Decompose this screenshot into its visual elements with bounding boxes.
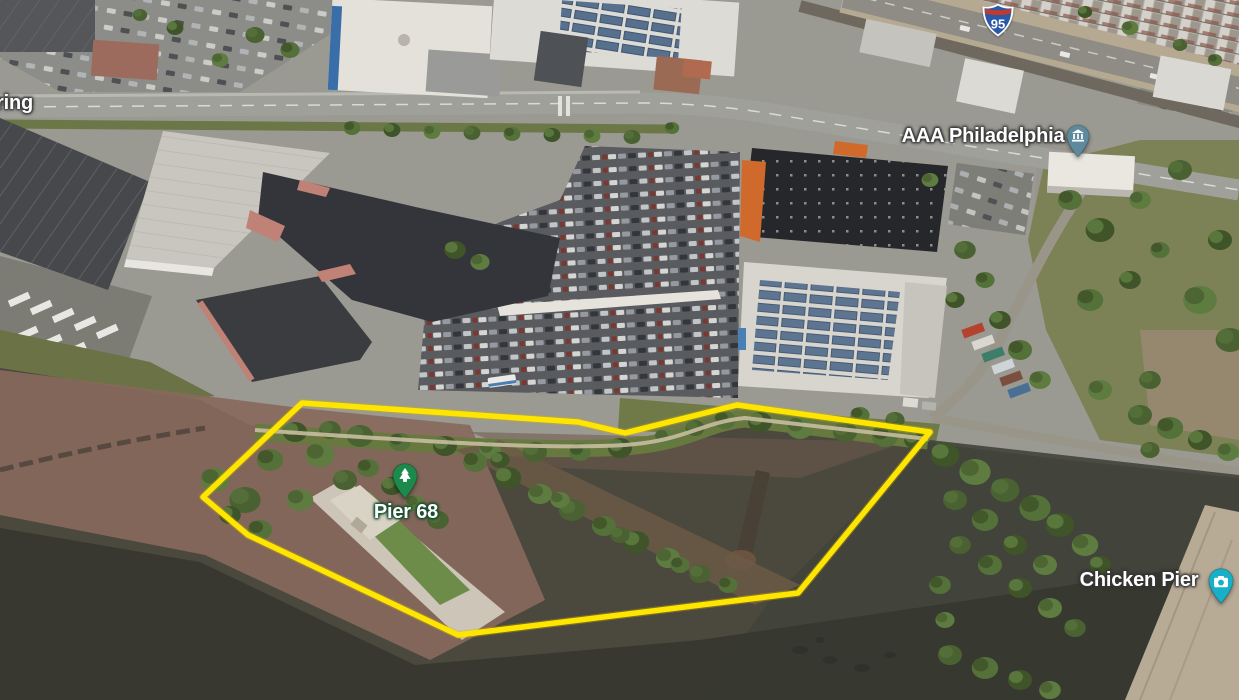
- pier-68-label[interactable]: Pier 68: [374, 501, 438, 524]
- satellite-map-view[interactable]: 95 ring AAA Philadelphia Pier 68 Chicken…: [0, 0, 1239, 700]
- place-label-partial[interactable]: ring: [0, 92, 33, 115]
- aaa-pin civic-building-icon[interactable]: [1066, 124, 1090, 158]
- chicken-pier-label[interactable]: Chicken Pier: [1080, 569, 1199, 592]
- aaa-philadelphia-label[interactable]: AAA Philadelphia: [902, 125, 1065, 148]
- interstate-shield-icon: 95: [982, 3, 1014, 37]
- satellite-imagery: [0, 0, 1239, 700]
- pier68-pin evergreen-tree-icon[interactable]: [392, 462, 418, 500]
- svg-text:95: 95: [991, 17, 1005, 32]
- chicken-pier-pin camera-icon[interactable]: [1208, 567, 1234, 605]
- brick-building: [91, 40, 159, 81]
